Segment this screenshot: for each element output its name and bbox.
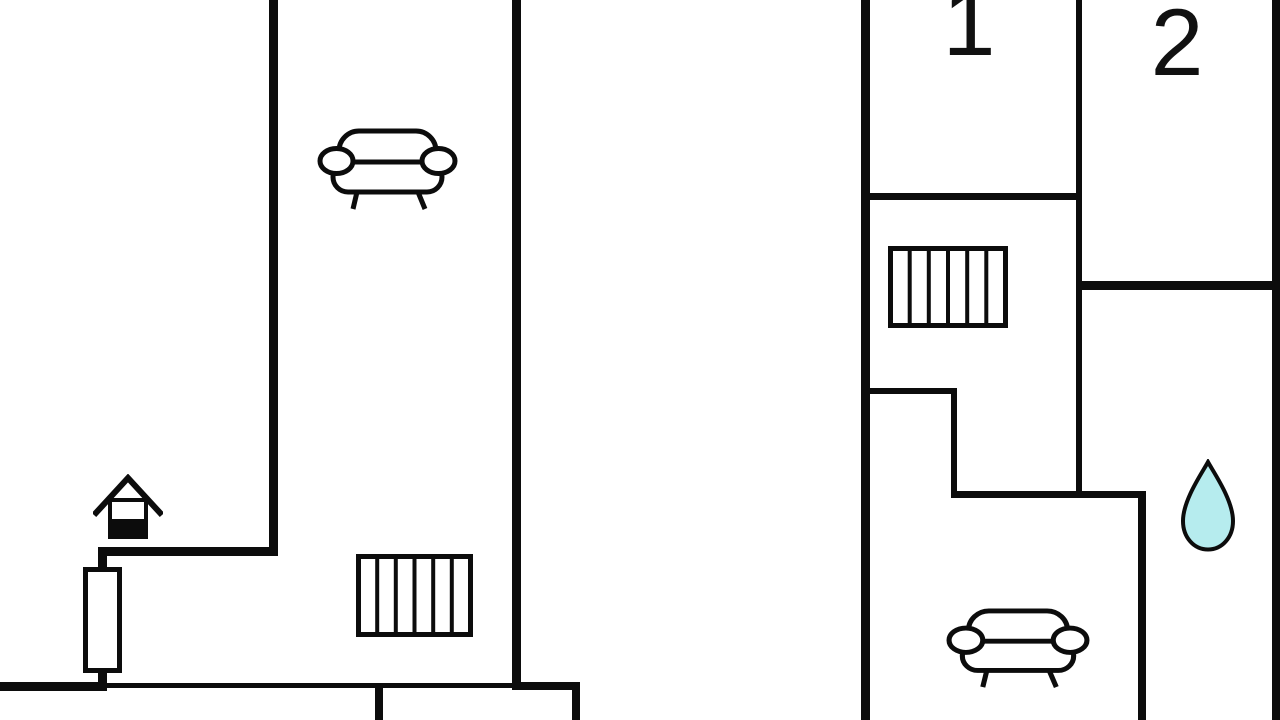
- room-1-label: 1: [943, 0, 996, 71]
- wall: [869, 193, 1082, 200]
- wall: [512, 0, 521, 690]
- wall: [98, 683, 516, 688]
- sofa-icon: [946, 608, 1090, 689]
- wall: [0, 682, 107, 691]
- window-element: [83, 567, 122, 673]
- wall: [861, 0, 870, 720]
- wall: [269, 0, 278, 556]
- floor-plan: 1 2: [0, 0, 1280, 720]
- wall: [375, 687, 383, 720]
- wall: [1082, 281, 1280, 290]
- water-drop-icon: [1181, 459, 1235, 552]
- wall: [1076, 0, 1082, 497]
- wall: [869, 388, 957, 394]
- stairs-icon: [356, 554, 473, 637]
- wall: [512, 682, 580, 690]
- sofa-icon: [317, 128, 458, 211]
- wall: [572, 682, 580, 720]
- wall: [951, 491, 1146, 498]
- wall: [98, 547, 278, 556]
- wall: [1272, 0, 1280, 720]
- stairs-icon: [888, 246, 1008, 328]
- stove-house-icon: [93, 474, 163, 540]
- room-2-label: 2: [1151, 0, 1204, 91]
- wall: [1138, 491, 1146, 720]
- wall: [951, 388, 957, 497]
